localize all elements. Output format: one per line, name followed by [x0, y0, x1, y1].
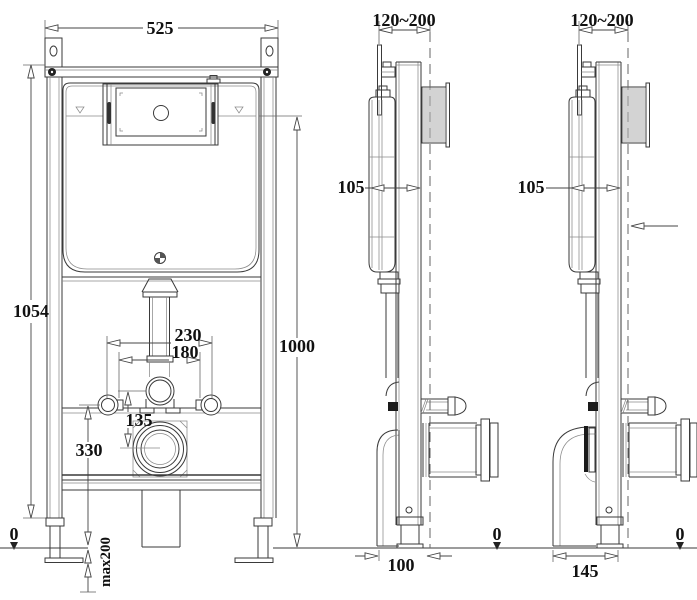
fill-valve-cap	[207, 79, 220, 83]
floor-zero-mid: 0	[493, 524, 502, 544]
front-view: 525	[10, 18, 316, 592]
dim-height-total: 1054	[13, 301, 49, 321]
inlet-sleeve-1	[422, 83, 450, 147]
foot-side-2	[597, 507, 623, 548]
side-view-wall-outlet: 120~200	[518, 10, 697, 581]
frame-post-side-1	[396, 62, 421, 525]
wc-frame-drawing: 525	[0, 0, 697, 600]
level-mark-left	[76, 107, 84, 113]
flush-pipe-side-2	[578, 272, 600, 411]
fixing-block-1	[388, 402, 398, 411]
dim-outlet-height: 330	[76, 440, 103, 460]
waste-stub-2	[623, 419, 697, 481]
level-mark-right	[235, 107, 243, 113]
wall-bracket-2	[578, 45, 596, 115]
mount-hole-left	[50, 46, 57, 56]
waste-stub-1	[423, 419, 498, 481]
dim-height-flush: 1000	[279, 336, 315, 356]
access-panel	[103, 84, 218, 145]
dim-leg-extension: max200	[98, 537, 114, 587]
wall-bracket-1	[378, 45, 396, 115]
dim-outlet-offset: 145	[572, 561, 599, 581]
adjustable-legs	[45, 518, 273, 563]
floor-arrow-mid	[493, 542, 501, 550]
side-view-floor-outlet: 120~200	[338, 10, 502, 575]
frame-post-side-2	[596, 62, 621, 525]
foot-plate-left	[45, 558, 83, 563]
mount-hole-right	[266, 46, 273, 56]
inlet-stub-1	[421, 397, 466, 415]
dim-width: 525	[147, 18, 174, 38]
flush-pipe	[142, 279, 178, 377]
dim-depth-range-2: 120~200	[570, 10, 633, 30]
foot-plate-right	[235, 558, 273, 563]
dim-connector-offset: 135	[126, 410, 153, 430]
floor-arrow-right	[676, 542, 684, 550]
cistern-side-1	[369, 86, 395, 272]
dim-frame-depth-2: 105	[518, 177, 545, 197]
drain-duct	[142, 490, 180, 547]
waste-elbow-2	[553, 426, 596, 546]
fixing-block-2	[588, 402, 598, 411]
cistern-side-2	[569, 86, 595, 272]
inlet-sleeve-2	[622, 83, 650, 147]
dim-frame-depth-1: 105	[338, 177, 365, 197]
dim-front-to-wall: 100	[388, 555, 415, 575]
foot-side-1	[397, 507, 423, 548]
technical-drawing-page: 525	[0, 0, 697, 600]
flush-button	[154, 106, 169, 121]
floor-zero-right: 0	[676, 524, 685, 544]
floor-arrow-front	[10, 542, 18, 550]
flush-pipe-side-1	[378, 272, 400, 411]
cistern-front	[63, 76, 302, 273]
dim-depth-range-1: 120~200	[372, 10, 435, 30]
dim-fixing-inner: 180	[172, 342, 199, 362]
floor-zero-front: 0	[10, 524, 19, 544]
